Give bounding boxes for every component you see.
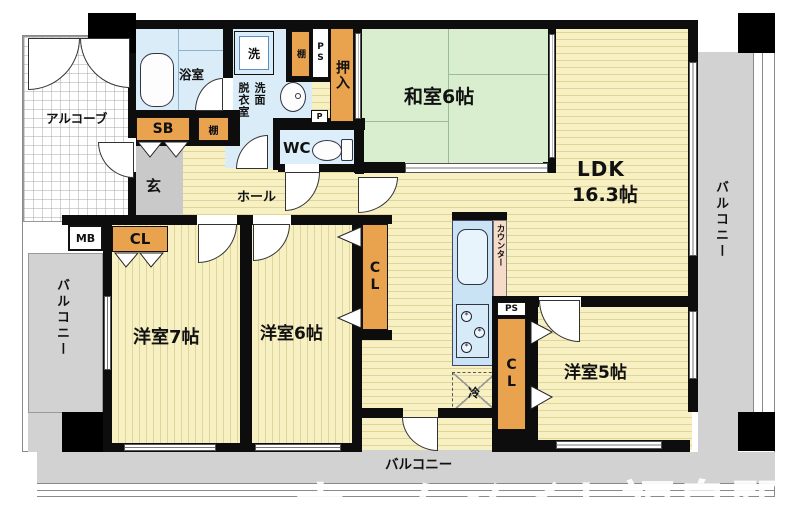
senmen-label-right: 洗面 [253, 82, 267, 106]
ps-top-label: PS [316, 42, 326, 64]
wall-clmid-bottom [352, 330, 392, 340]
bath-partition-h [178, 50, 223, 51]
wall-clmid-top [352, 215, 392, 224]
room7-label: 洋室7帖 [133, 323, 200, 349]
counter-label: カウンター [494, 224, 506, 267]
hall-label: ホール [237, 186, 276, 205]
mb-box: MB [68, 225, 103, 251]
shelf-side: 棚 [291, 31, 310, 77]
cl-kitchen-label: CL [504, 357, 520, 391]
railing-right-2 [762, 52, 763, 412]
tatami-line [448, 74, 548, 75]
oshiire-label: 押入 [332, 60, 352, 90]
washitsu-label: 和室6帖 [404, 82, 474, 109]
wall-washitsu-bottom-a [354, 162, 405, 173]
washitsu-fusuma [405, 163, 548, 173]
cl-kitchen-closet: CL [497, 318, 526, 430]
wc-label: WC [283, 139, 311, 157]
room7-side-window [104, 296, 111, 370]
tatami-line [362, 121, 448, 122]
cl-mid-bifold-doors [336, 226, 362, 330]
cl-hall-bifold-doors [114, 252, 164, 269]
ldk-label-line1: LDK [577, 157, 625, 181]
alcove-label: アルコーブ [46, 108, 107, 127]
toilet-tank [341, 139, 353, 161]
sb-label: SB [153, 121, 174, 137]
wall-top [110, 20, 698, 29]
bath-door-opening [223, 78, 233, 110]
room5-label: 洋室5帖 [564, 358, 627, 383]
cl-hall-label: CL [130, 230, 151, 248]
railing-right-1 [753, 52, 754, 412]
watermark: ホームメイト福島駅前 [292, 462, 800, 511]
room6-label: 洋室6帖 [260, 319, 323, 344]
pillar-bottom-right [738, 412, 775, 451]
ps-kitchen-label: PS [505, 304, 518, 314]
senmen-label-left: 脱衣室 [237, 82, 251, 118]
pillar-top-right [738, 13, 775, 53]
washer-label: 洗 [248, 45, 260, 62]
oshiire-closet: 押入 [330, 28, 354, 122]
bath-label: 浴室 [179, 64, 204, 83]
kitchen-sink [457, 229, 488, 285]
p-label: P [317, 112, 323, 121]
washitsu-right-window [549, 34, 555, 158]
cl-mid-label: CL [367, 260, 383, 294]
balcony-right-corner [698, 412, 738, 452]
ldk-balcony-window [689, 62, 697, 256]
washbasin [280, 82, 306, 112]
cl-hall-closet: CL [112, 226, 168, 252]
wall-room76-divider [240, 222, 252, 452]
wc-door-opening [285, 164, 319, 172]
stove-burner: * [461, 342, 472, 353]
cl-kitchen-bifold-doors [530, 318, 554, 412]
ldk-label-line2: 16.3帖 [572, 180, 638, 207]
cl-mid-closet: CL [362, 224, 388, 330]
wall-ldk-bottom-a [352, 408, 403, 418]
bathtub [140, 53, 174, 107]
pillar-bottom-left [62, 412, 103, 452]
oshiire-fusuma [355, 33, 361, 119]
room5-balcony-window-side [689, 311, 697, 379]
genkan-label: 玄 [146, 175, 161, 196]
floor-plan: * * * 押入 SB 棚 棚 PS P MB CL [0, 0, 800, 511]
p-box: P [311, 110, 328, 123]
room5-window [556, 441, 662, 449]
ps-kitchen-box: PS [497, 302, 526, 316]
shelf-by-sb: 棚 [198, 117, 229, 141]
washer-pan: 洗 [234, 31, 274, 75]
shelf-side-label: 棚 [294, 49, 307, 59]
stove-burner: * [474, 327, 485, 338]
shoe-box: SB [136, 117, 190, 141]
kitchen-top-wall [452, 212, 507, 220]
room6-window [255, 444, 341, 451]
balcony-left-lower [28, 413, 62, 452]
washbasin-drain [295, 93, 301, 99]
wall-ldk-bottom-b [438, 408, 498, 418]
room7-window [124, 444, 216, 451]
balcony-left-label: バルコニー [52, 278, 71, 358]
shelf-label: 棚 [209, 122, 219, 137]
mb-label: MB [76, 232, 95, 245]
ps-top-box: PS [312, 28, 329, 78]
stove-burner: * [461, 311, 472, 322]
fridge-label: 冷 [468, 384, 480, 401]
wall-left-mid [128, 172, 136, 218]
sb-bifold-doors [137, 141, 189, 159]
balcony-right-label: バルコニー [711, 180, 730, 260]
toilet-bowl [312, 140, 342, 161]
